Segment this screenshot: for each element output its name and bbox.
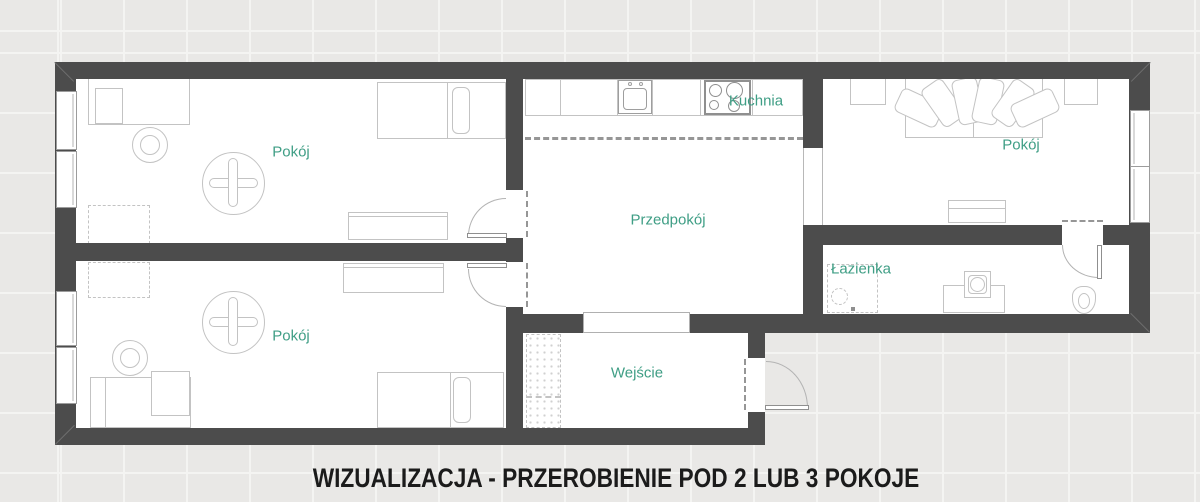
entrance-door-leaf — [765, 405, 809, 410]
burner-symbol — [709, 84, 722, 97]
wall-bottom-left — [55, 428, 765, 445]
counter-divider — [652, 80, 653, 115]
window — [1130, 110, 1150, 167]
bench-line — [948, 208, 1006, 209]
bed-symbol — [377, 372, 504, 428]
room-label-bottom-left: Pokój — [272, 328, 310, 345]
nightstand-symbol — [850, 78, 886, 105]
entrance-label: Wejście — [611, 365, 663, 382]
sink-bowl-symbol — [623, 88, 647, 110]
chair-symbol — [95, 88, 123, 124]
entrance-door-swing-arc — [766, 361, 808, 408]
door-dashed-line — [526, 191, 528, 237]
door-leaf — [1097, 245, 1102, 279]
bathroom-label: Łazienka — [831, 261, 891, 278]
fan-blade-symbol — [228, 297, 238, 346]
desk-side-symbol — [90, 377, 106, 428]
door-leaf — [467, 233, 507, 238]
wall-room-bath-divider-a — [823, 225, 1062, 245]
wall-left-rooms-divider — [55, 243, 523, 261]
wall-hall-right-b — [803, 225, 823, 333]
entrance-door-opening — [748, 358, 765, 412]
door-opening — [506, 190, 523, 238]
window — [1130, 166, 1150, 223]
pillow-symbol — [452, 87, 470, 134]
door-dashed-line — [526, 263, 528, 307]
bed-line — [447, 82, 448, 139]
nightstand-symbol — [1064, 78, 1098, 105]
door-dashed-line — [1062, 220, 1103, 222]
wall-hall-left-b — [506, 238, 523, 262]
wall-hall-left-a — [506, 62, 523, 190]
window — [56, 91, 77, 150]
shower-drain-symbol — [831, 288, 848, 305]
office-chair-seat-symbol — [140, 135, 160, 155]
counter-divider — [700, 80, 701, 115]
faucet-knob-symbol — [628, 82, 632, 86]
wall-entrance-right-b — [748, 412, 765, 445]
wardrobe-symbol — [88, 262, 150, 298]
room-label-right: Pokój — [1002, 137, 1040, 154]
wall-hall-right-a — [803, 62, 823, 148]
door-opening — [1062, 225, 1103, 245]
hallway-label: Przedpokój — [630, 212, 705, 229]
caption-title: WIZUALIZACJA - PRZEROBIENIE POD 2 LUB 3 … — [112, 463, 1120, 494]
entry-wardrobe-symbol — [526, 334, 561, 428]
wardrobe-symbol — [88, 205, 150, 244]
toilet-bowl-symbol — [1078, 293, 1090, 309]
room-label-top-left: Pokój — [272, 144, 310, 161]
wall-room-bath-divider-b — [1103, 225, 1129, 245]
window — [56, 151, 77, 208]
wall-hall-left-c — [506, 307, 523, 428]
fan-blade-symbol — [228, 158, 238, 207]
bed-symbol — [377, 82, 506, 139]
bench-symbol — [948, 200, 1006, 223]
window — [56, 347, 77, 404]
wall-top — [55, 62, 1150, 79]
burner-symbol — [709, 100, 719, 110]
table-edge-line — [343, 267, 444, 268]
entry-wardrobe-divider — [526, 396, 561, 398]
washing-machine-drum-symbol — [970, 277, 985, 292]
entrance-passage-opening — [583, 312, 690, 333]
door-dashed-line — [744, 359, 746, 410]
chair-symbol — [151, 371, 190, 416]
table-edge-line — [348, 216, 448, 217]
pillow-symbol — [453, 377, 471, 423]
counter-divider — [560, 80, 561, 115]
wall-entrance-right-a — [748, 333, 765, 358]
floor-plan: Pokój Pokój Pokój Kuchnia Przedpokój Łaz… — [0, 0, 1200, 502]
kitchen-zone-dashed-line — [525, 137, 803, 140]
door-opening — [506, 262, 523, 307]
office-chair-seat-symbol — [120, 348, 140, 368]
bed-line — [450, 372, 451, 428]
shower-dot — [851, 307, 855, 311]
faucet-knob-symbol — [639, 82, 643, 86]
kitchen-label: Kuchnia — [729, 93, 783, 110]
passage-opening — [803, 148, 823, 225]
window — [56, 291, 77, 346]
door-leaf — [467, 263, 507, 268]
